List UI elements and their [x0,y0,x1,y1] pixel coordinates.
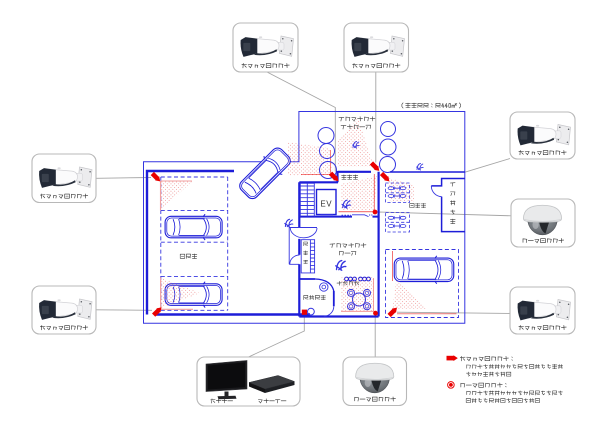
svg-text:EV: EV [320,200,332,209]
